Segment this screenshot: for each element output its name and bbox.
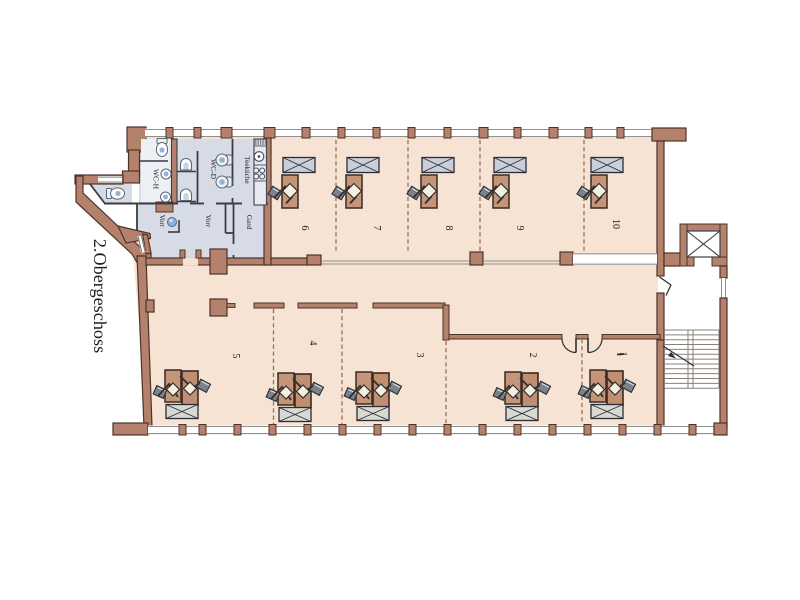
svg-text:Vorr: Vorr [204,215,212,228]
svg-text:7: 7 [371,226,382,231]
svg-text:9: 9 [514,226,525,231]
svg-text:WC-H: WC-H [152,169,161,190]
svg-text:8: 8 [443,226,454,231]
svg-text:WC-D: WC-D [209,159,218,180]
svg-text:2.Obergeschoss: 2.Obergeschoss [90,239,110,353]
svg-text:Teeküche: Teeküche [243,156,251,183]
svg-text:3: 3 [414,353,425,358]
svg-text:5: 5 [230,354,241,359]
svg-text:Vorr: Vorr [158,215,166,228]
svg-text:10: 10 [610,219,621,229]
svg-text:6: 6 [299,226,310,231]
svg-text:1: 1 [617,352,628,357]
svg-text:Gard: Gard [245,215,253,230]
svg-text:4: 4 [307,341,318,346]
svg-text:2: 2 [527,353,538,358]
